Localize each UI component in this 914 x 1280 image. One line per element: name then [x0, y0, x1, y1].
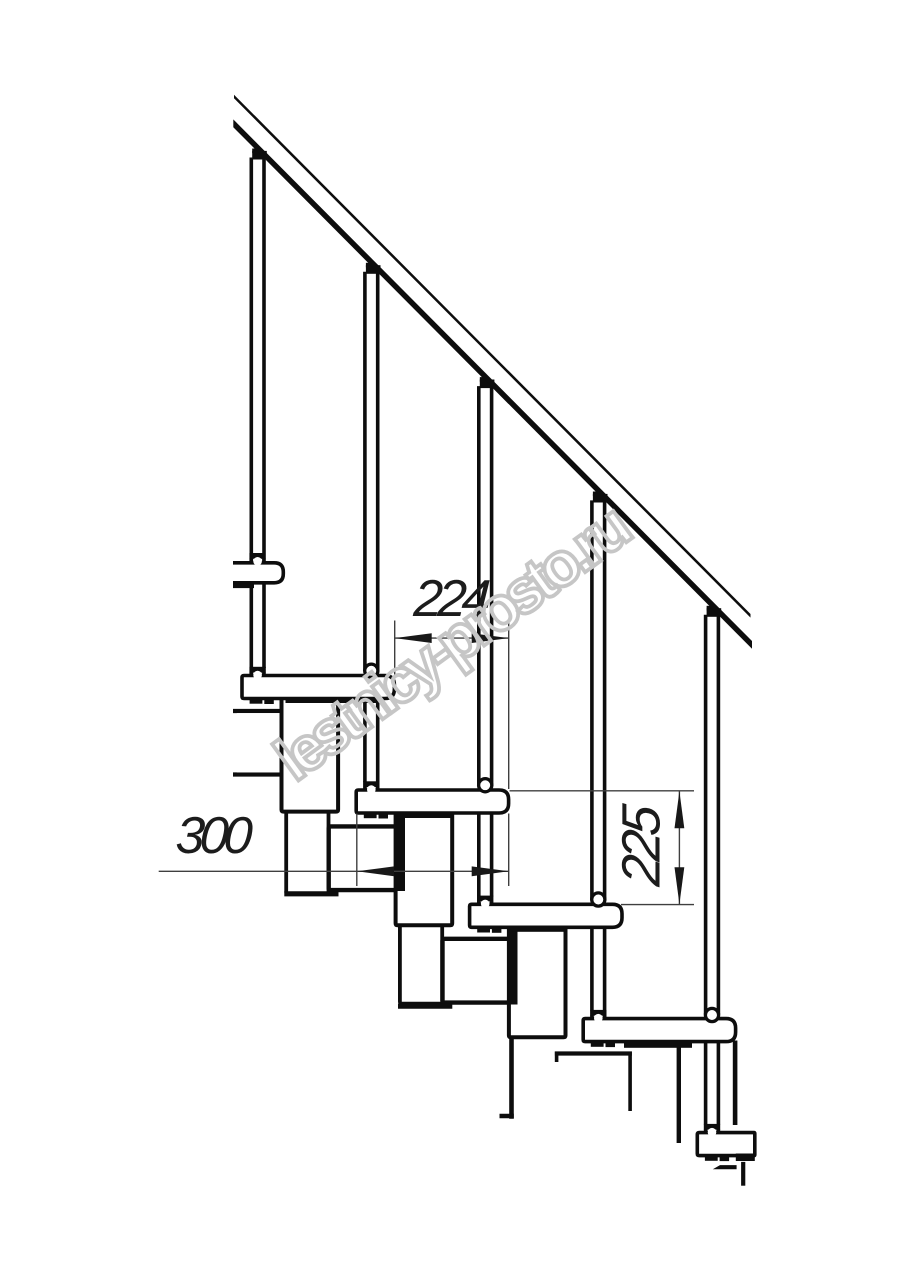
svg-text:225: 225 [612, 801, 672, 889]
svg-text:300: 300 [174, 807, 254, 865]
